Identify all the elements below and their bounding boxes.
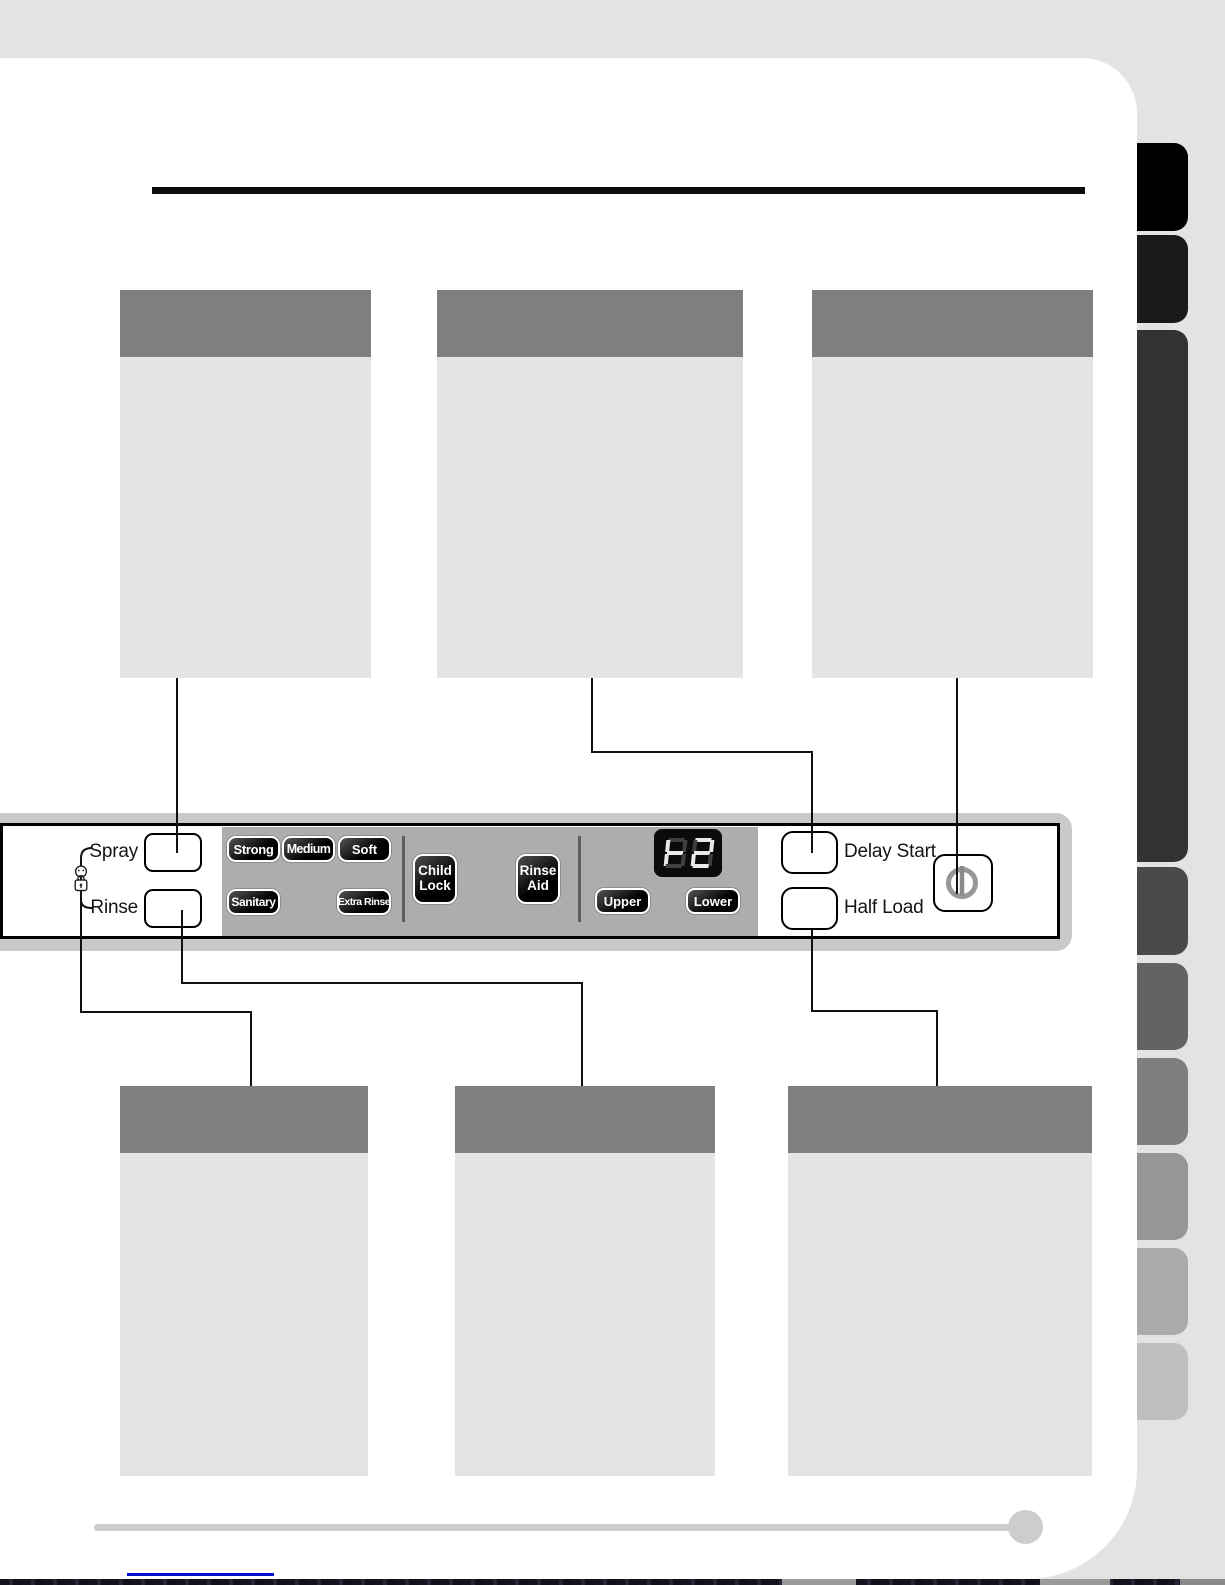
sanitary-button[interactable]: Sanitary	[227, 889, 280, 915]
rinse-label: Rinse	[60, 897, 138, 919]
medium-button[interactable]: Medium	[282, 836, 335, 862]
footer-rule	[94, 1524, 1014, 1531]
rinse-aid-label-line2: Aid	[527, 879, 549, 894]
callout-box-6	[788, 1086, 1092, 1476]
sidebar-tab-5[interactable]	[1137, 963, 1188, 1050]
spray-button[interactable]	[144, 833, 202, 872]
strong-button[interactable]: Strong	[227, 836, 280, 862]
rinse-aid-button[interactable]: Rinse Aid	[516, 854, 560, 904]
rinse-aid-label-line1: Rinse	[520, 864, 557, 879]
callout-box-5	[455, 1086, 715, 1476]
footer-link-underline	[127, 1573, 274, 1576]
sidebar-tab-9[interactable]	[1137, 1343, 1188, 1420]
sidebar-tab-2[interactable]	[1137, 235, 1188, 323]
rinse-button[interactable]	[144, 889, 202, 928]
half-load-label: Half Load	[844, 897, 924, 919]
callout-box-4-header	[120, 1086, 368, 1153]
callout-box-5-header	[455, 1086, 715, 1153]
callout-box-2-header	[437, 290, 743, 357]
half-load-button[interactable]	[781, 887, 838, 930]
callout-box-4	[120, 1086, 368, 1476]
panel-divider-right	[578, 836, 581, 922]
display-digit-left	[663, 838, 687, 868]
callout-box-2	[437, 290, 743, 678]
callout-box-6-header	[788, 1086, 1092, 1153]
soft-button[interactable]: Soft	[338, 836, 391, 862]
delay-start-button[interactable]	[781, 831, 838, 874]
delay-start-label: Delay Start	[844, 841, 936, 863]
child-lock-label-line1: Child	[418, 864, 452, 879]
child-lock-button[interactable]: Child Lock	[413, 854, 457, 904]
page-bottom-edge	[0, 1579, 1225, 1585]
sidebar-tab-6[interactable]	[1137, 1058, 1188, 1145]
extra-rinse-button[interactable]: Extra Rinse	[337, 889, 391, 915]
sidebar-tab-3[interactable]	[1137, 330, 1188, 862]
seven-segment-display	[654, 829, 722, 877]
sidebar-tab-8[interactable]	[1137, 1248, 1188, 1335]
manual-page-canvas: { "colors": { "background": "#e3e3e3", "…	[0, 0, 1225, 1585]
sidebar-tab-4[interactable]	[1137, 867, 1188, 955]
sidebar-tab-7[interactable]	[1137, 1153, 1188, 1240]
callout-box-1	[120, 290, 371, 678]
display-digit-right	[690, 838, 714, 868]
panel-divider-left	[402, 836, 405, 922]
callout-box-3	[812, 290, 1093, 678]
upper-button[interactable]: Upper	[595, 888, 650, 914]
callout-box-3-header	[812, 290, 1093, 357]
lower-button[interactable]: Lower	[686, 888, 740, 914]
footer-dot	[1008, 1510, 1043, 1544]
power-icon	[946, 867, 978, 899]
callout-box-1-header	[120, 290, 371, 357]
sidebar-tab-1[interactable]	[1137, 143, 1188, 231]
child-lock-label-line2: Lock	[419, 879, 451, 894]
spray-label: Spray	[60, 841, 138, 863]
section-title-rule	[152, 187, 1085, 194]
